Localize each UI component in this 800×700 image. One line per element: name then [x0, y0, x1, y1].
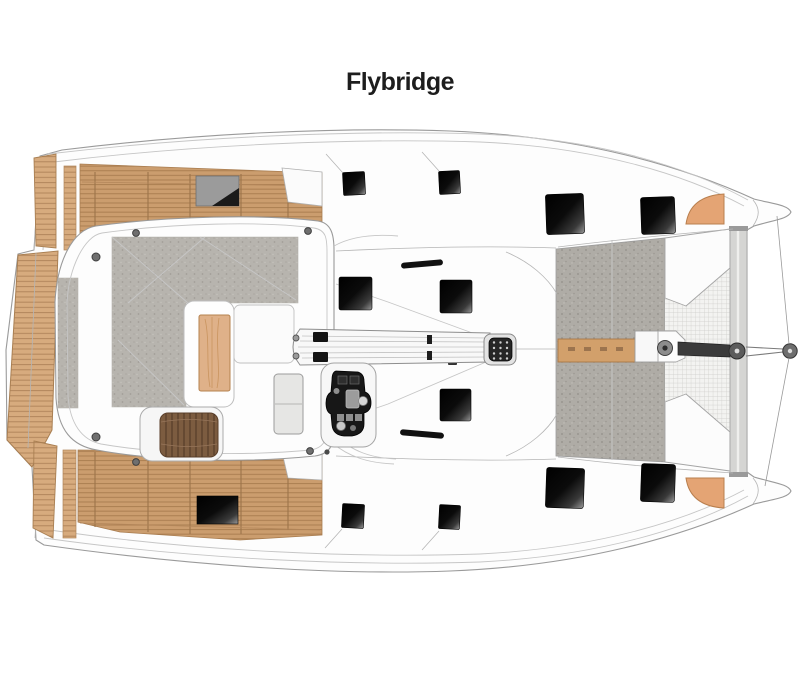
- side-hatch-port-2: [438, 170, 460, 194]
- bowsprit-arm: [678, 342, 730, 357]
- coachroof-hatch-1: [339, 277, 372, 310]
- helm-compass: [337, 422, 346, 431]
- fore-hatch-port-1: [545, 193, 584, 234]
- helm-button-3: [355, 414, 362, 421]
- helm-display: [346, 390, 359, 408]
- boom-pad-2: [313, 352, 328, 362]
- stern-step-port: [34, 154, 56, 248]
- aft-deck-port-notch: [282, 168, 322, 206]
- gooseneck-bolt-2: [293, 353, 299, 359]
- rig: [293, 329, 516, 365]
- fitting-pin: [735, 349, 740, 354]
- helm-station: [321, 363, 376, 447]
- lounge-table: [199, 315, 230, 391]
- helm-button-2: [346, 414, 353, 421]
- helm-knob-2: [350, 425, 356, 431]
- bridle-plates: [746, 347, 783, 356]
- aft-deck-starboard-hatch: [197, 496, 238, 524]
- throttle-lever-1: [338, 376, 347, 384]
- coachroof-hatch-2: [440, 280, 472, 313]
- aft-deck-port-hatch: [196, 176, 239, 206]
- side-deck-strip-starboard: [63, 450, 76, 538]
- deck-plan-diagram: [0, 0, 800, 700]
- helm-button-1: [337, 414, 344, 421]
- helm-seat: [274, 374, 303, 434]
- side-hatch-starboard-2: [438, 504, 460, 529]
- gooseneck-bolt-1: [293, 335, 299, 341]
- bar-module: [234, 305, 294, 363]
- flybridge-plan-page: Flybridge: [0, 0, 800, 700]
- sunbed: [140, 407, 223, 461]
- side-hatch-port-1: [342, 171, 365, 195]
- boom-tick-2: [427, 351, 432, 360]
- boom-pad-1: [313, 332, 328, 342]
- boom-tick-1: [427, 335, 432, 344]
- foredeck-crossbeam-wood: [558, 339, 636, 362]
- throttle-lever-2: [350, 376, 359, 384]
- windlass-center: [662, 345, 667, 350]
- coachroof-hatch-3: [440, 389, 471, 421]
- fore-hatch-starboard-1: [545, 467, 584, 508]
- fore-hatch-starboard-2: [640, 463, 675, 502]
- mast: [484, 334, 516, 365]
- helm-dial: [359, 397, 368, 406]
- fitting-pin-outer: [788, 349, 792, 353]
- bow-cone-bases: [753, 200, 758, 504]
- anchor-locker-box: [635, 331, 659, 362]
- side-hatch-starboard-1: [341, 503, 364, 528]
- helm-knob-1: [334, 388, 340, 394]
- fore-hatch-port-2: [640, 196, 675, 234]
- stern-step-starboard: [33, 441, 57, 538]
- side-deck-strip-port: [64, 166, 76, 250]
